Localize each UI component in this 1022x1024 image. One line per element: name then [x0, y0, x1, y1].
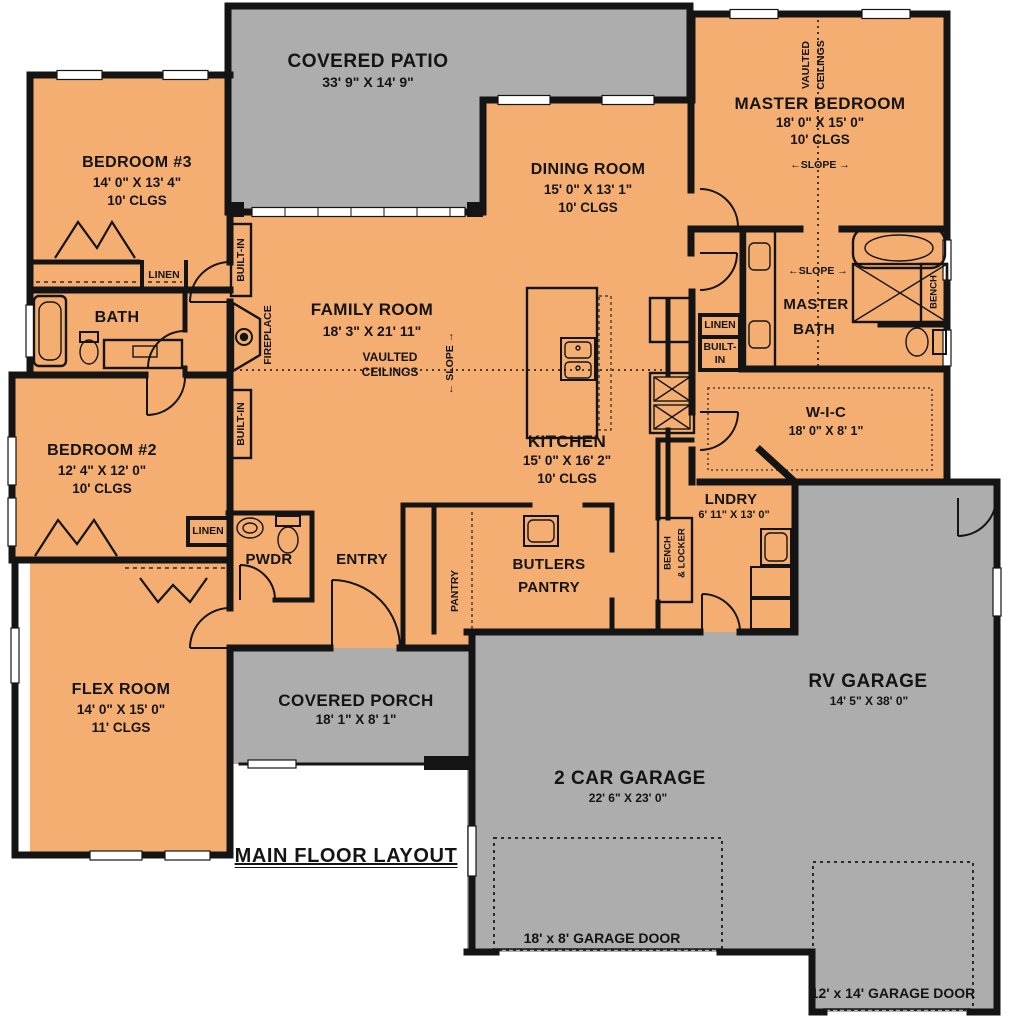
master-bedroom-label: MASTER BEDROOM [735, 95, 906, 112]
two-car-garage-label: 2 CAR GARAGE [554, 769, 706, 788]
linen-label-1: LINEN [148, 270, 180, 281]
butlers-pantry-label-2: PANTRY [518, 580, 580, 595]
bench-label: BENCH [929, 275, 939, 309]
bedroom-2-dims: 12' 4" X 12' 0" [58, 464, 146, 478]
master-bedroom-dims: 18' 0" X 15' 0" [776, 116, 864, 130]
bench-locker-label-1: BENCH [663, 536, 673, 570]
laundry-label: LNDRY [705, 492, 758, 507]
master-bath-label-2: BATH [793, 322, 835, 337]
wic-dims: 18' 0" X 8' 1" [789, 425, 864, 438]
bedroom-2-label: BEDROOM #2 [47, 443, 157, 459]
master-bath-label-1: MASTER [783, 297, 848, 312]
plan-title: MAIN FLOOR LAYOUT [235, 846, 458, 868]
built-in-label-top: BUILT-IN [236, 238, 247, 282]
bench-locker-label-2: & LOCKER [677, 528, 687, 578]
kitchen-ceiling: 10' CLGS [537, 472, 596, 486]
linen-label-3: LINEN [704, 320, 736, 331]
garage-door-12x14-label: 12' x 14' GARAGE DOOR [811, 986, 976, 1000]
master-bath-slope-note: SLOPE [788, 266, 848, 277]
laundry-dims: 6' 11" X 13' 0" [698, 510, 769, 521]
kitchen-label: KITCHEN [528, 433, 606, 450]
built-in-label-right-2: IN [715, 355, 726, 366]
wic-label: W-I-C [806, 405, 846, 420]
powder-room-label: PWDR [245, 552, 292, 567]
bedroom-3-label: BEDROOM #3 [82, 155, 192, 171]
built-in-label-right-1: BUILT- [703, 342, 736, 353]
flex-room-label: FLEX ROOM [72, 682, 171, 698]
bedroom-3-ceiling: 10' CLGS [107, 194, 166, 208]
master-vaulted-note-2: CEILINGS [816, 40, 827, 90]
family-vaulted-note-1: VAULTED [363, 351, 418, 363]
dining-room-ceiling: 10' CLGS [558, 201, 617, 215]
linen-label-2: LINEN [192, 526, 224, 537]
covered-patio-dims: 33' 9" X 14' 9" [322, 75, 414, 89]
family-slope-note: SLOPE [445, 332, 456, 394]
flex-room-dims: 14' 0" X 15' 0" [77, 703, 165, 717]
bedroom-3-dims: 14' 0" X 13' 4" [93, 176, 181, 190]
entry-label: ENTRY [336, 552, 388, 567]
family-vaulted-note-2: CEILINGS [362, 366, 419, 378]
bedroom-2-ceiling: 10' CLGS [72, 482, 131, 496]
pantry-label: PANTRY [450, 570, 461, 612]
fireplace-label: FIREPLACE [263, 305, 274, 365]
master-bedroom-slope-note: SLOPE [790, 160, 850, 171]
dining-room-label: DINING ROOM [531, 162, 646, 178]
master-vaulted-note-1: VAULTED [801, 41, 812, 89]
built-in-label-bottom: BUILT-IN [236, 402, 247, 446]
covered-porch-label: COVERED PORCH [278, 692, 433, 709]
master-bedroom-ceiling: 10' CLGS [790, 133, 849, 147]
covered-patio-label: COVERED PATIO [288, 52, 449, 71]
garage-door-18x8-label: 18' x 8' GARAGE DOOR [524, 931, 681, 945]
covered-porch-dims: 18' 1" X 8' 1" [316, 713, 397, 727]
rv-garage-dims: 14' 5" X 38' 0" [830, 695, 908, 707]
flex-room-ceiling: 11' CLGS [92, 721, 151, 735]
family-room-label: FAMILY ROOM [311, 301, 433, 318]
floor-plan: COVERED PATIO 33' 9" X 14' 9" MASTER BED… [0, 0, 1022, 1024]
dining-room-dims: 15' 0" X 13' 1" [544, 183, 632, 197]
kitchen-dims: 15' 0" X 16' 2" [523, 454, 611, 468]
two-car-garage-dims: 22' 6" X 23' 0" [589, 792, 667, 804]
family-room-dims: 18' 3" X 21' 11" [323, 324, 422, 338]
butlers-pantry-label-1: BUTLERS [513, 557, 586, 572]
rv-garage-label: RV GARAGE [808, 672, 927, 691]
bath-label: BATH [95, 310, 140, 326]
